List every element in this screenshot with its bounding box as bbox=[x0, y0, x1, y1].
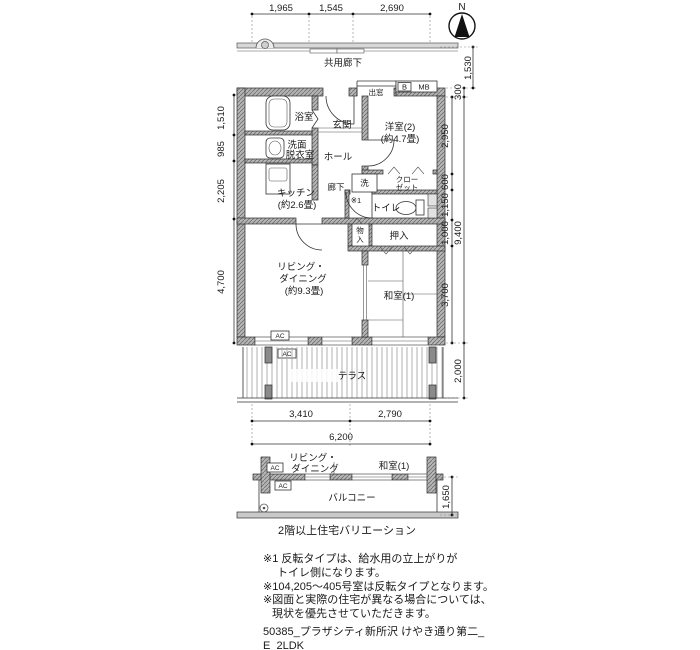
floorplan-page: 1,965 1,545 2,690 N 共用廊下 bbox=[0, 0, 700, 650]
japanese-room-label: 和室(1) bbox=[384, 290, 415, 302]
oshiire-label: 押入 bbox=[389, 230, 409, 242]
balcony-variation: リビング・ ダイニング 和室(1) AC AC バルコニー 1,650 2階以上… bbox=[237, 452, 458, 537]
room-label-bath: 浴室 bbox=[294, 111, 313, 123]
living-label-2: ダイニング bbox=[279, 273, 327, 285]
meter-mb-label: MB bbox=[418, 83, 429, 92]
corridor-label: 共用廊下 bbox=[324, 57, 362, 69]
storage-label-1: 物 bbox=[356, 225, 364, 235]
dim-bottom-total: 6,200 bbox=[329, 432, 353, 443]
var-balcony-label: バルコニー bbox=[328, 493, 375, 504]
note-line-4: ※図面と実際の住宅が異なる場合については、 bbox=[263, 592, 492, 606]
dim-left-1: 1,510 bbox=[216, 106, 227, 130]
meter-b-label: B bbox=[402, 83, 407, 92]
living-label-1: リビング・ bbox=[277, 261, 325, 273]
dim-right-3700: 3,700 bbox=[440, 283, 451, 307]
dim-bottom-2: 2,790 bbox=[378, 409, 402, 420]
var-ac-label-2: AC bbox=[278, 483, 287, 490]
dim-top-3: 2,690 bbox=[380, 3, 404, 14]
dim-right-600: 600 bbox=[440, 174, 451, 190]
washer-label: 洗 bbox=[360, 178, 369, 188]
note-line-3: ※104,205〜405号室は反転タイプとなります。 bbox=[263, 579, 494, 593]
note-line-5: 現状を優先させていただきます。 bbox=[272, 606, 436, 620]
room-label-western2-2: (約4.7畳) bbox=[381, 133, 420, 145]
note-line-1: ※1 反転タイプは、給水用の立上がりが bbox=[263, 551, 457, 565]
dim-right-2000: 2,000 bbox=[453, 359, 464, 383]
living-label-3: (約9.3畳) bbox=[285, 285, 324, 297]
dim-bottom-1: 3,410 bbox=[289, 409, 313, 420]
north-label: N bbox=[458, 2, 465, 13]
note1-marker: ※1 bbox=[351, 196, 361, 205]
dim-left-3: 2,205 bbox=[216, 179, 227, 203]
dim-left-2: 985 bbox=[216, 141, 227, 157]
var-japanese-label: 和室(1) bbox=[379, 460, 410, 472]
terrace-label: テラス bbox=[338, 371, 366, 382]
toilet-tank-icon bbox=[416, 200, 424, 215]
dim-balcony-1650: 1,650 bbox=[441, 485, 452, 509]
north-compass: N bbox=[449, 2, 475, 39]
notes-block: ※1 反転タイプは、給水用の立上がりが トイレ側になります。 ※104,205〜… bbox=[263, 551, 494, 620]
dim-top-2: 1,545 bbox=[319, 3, 343, 14]
storage-label-2: 入 bbox=[356, 235, 364, 244]
dim-right-1150: 1,150 bbox=[440, 193, 451, 217]
room-label-western2-1: 洋室(2) bbox=[385, 121, 416, 133]
closet-label-2: ゼット bbox=[396, 182, 419, 192]
room-label-toilet: トイレ bbox=[372, 203, 401, 214]
dimension-left: 1,510 985 2,205 4,700 bbox=[216, 94, 235, 345]
room-label-kitchen-2: (約2.6畳) bbox=[278, 199, 317, 211]
variation-caption: 2階以上住宅バリエーション bbox=[278, 523, 416, 537]
dim-right-9400: 9,400 bbox=[453, 221, 464, 245]
var-living-label-2: ダイニング bbox=[291, 463, 339, 475]
dimension-right: 2,950 600 1,150 1,000 3,700 300 9,400 2,… bbox=[440, 46, 478, 400]
common-corridor: 共用廊下 bbox=[237, 39, 458, 69]
ac-label-living: AC bbox=[275, 333, 284, 340]
room-label-washroom-2: 脱衣室 bbox=[286, 149, 315, 161]
var-living-label-1: リビング・ bbox=[289, 452, 337, 464]
footer-line-2: E_2LDK bbox=[263, 640, 305, 650]
dim-left-4: 4,700 bbox=[216, 270, 227, 294]
note-line-2: トイレ側になります。 bbox=[277, 566, 386, 579]
dim-right-2950: 2,950 bbox=[440, 124, 451, 148]
footer-line-1: 50385_プラザシティ新所沢 けやき通り第二_ bbox=[263, 624, 485, 638]
terrace: テラス bbox=[237, 347, 458, 402]
var-ac-label-1: AC bbox=[270, 465, 279, 472]
dim-top-1: 1,965 bbox=[269, 3, 293, 14]
room-label-kitchen-1: キッチン bbox=[277, 188, 315, 199]
room-label-hall: ホール bbox=[324, 152, 353, 163]
dim-right-300: 300 bbox=[453, 84, 464, 100]
footer-block: 50385_プラザシティ新所沢 けやき通り第二_ E_2LDK bbox=[263, 624, 485, 650]
dim-right-1000: 1,000 bbox=[440, 221, 451, 245]
living-door-arc bbox=[296, 224, 322, 250]
room-label-hallway: 廊下 bbox=[327, 182, 345, 192]
floor-plan-drawing: 1,965 1,545 2,690 N 共用廊下 bbox=[0, 0, 700, 650]
dim-right-1530: 1,530 bbox=[463, 56, 474, 80]
meter-box: B MB bbox=[396, 81, 437, 92]
dimension-top: 1,965 1,545 2,690 bbox=[251, 3, 432, 43]
bay-window: 出窓 bbox=[357, 81, 396, 97]
dimension-bottom: 3,410 2,790 6,200 bbox=[251, 404, 432, 446]
bay-window-label: 出窓 bbox=[369, 87, 384, 97]
room-label-entrance: 玄関 bbox=[332, 119, 351, 131]
